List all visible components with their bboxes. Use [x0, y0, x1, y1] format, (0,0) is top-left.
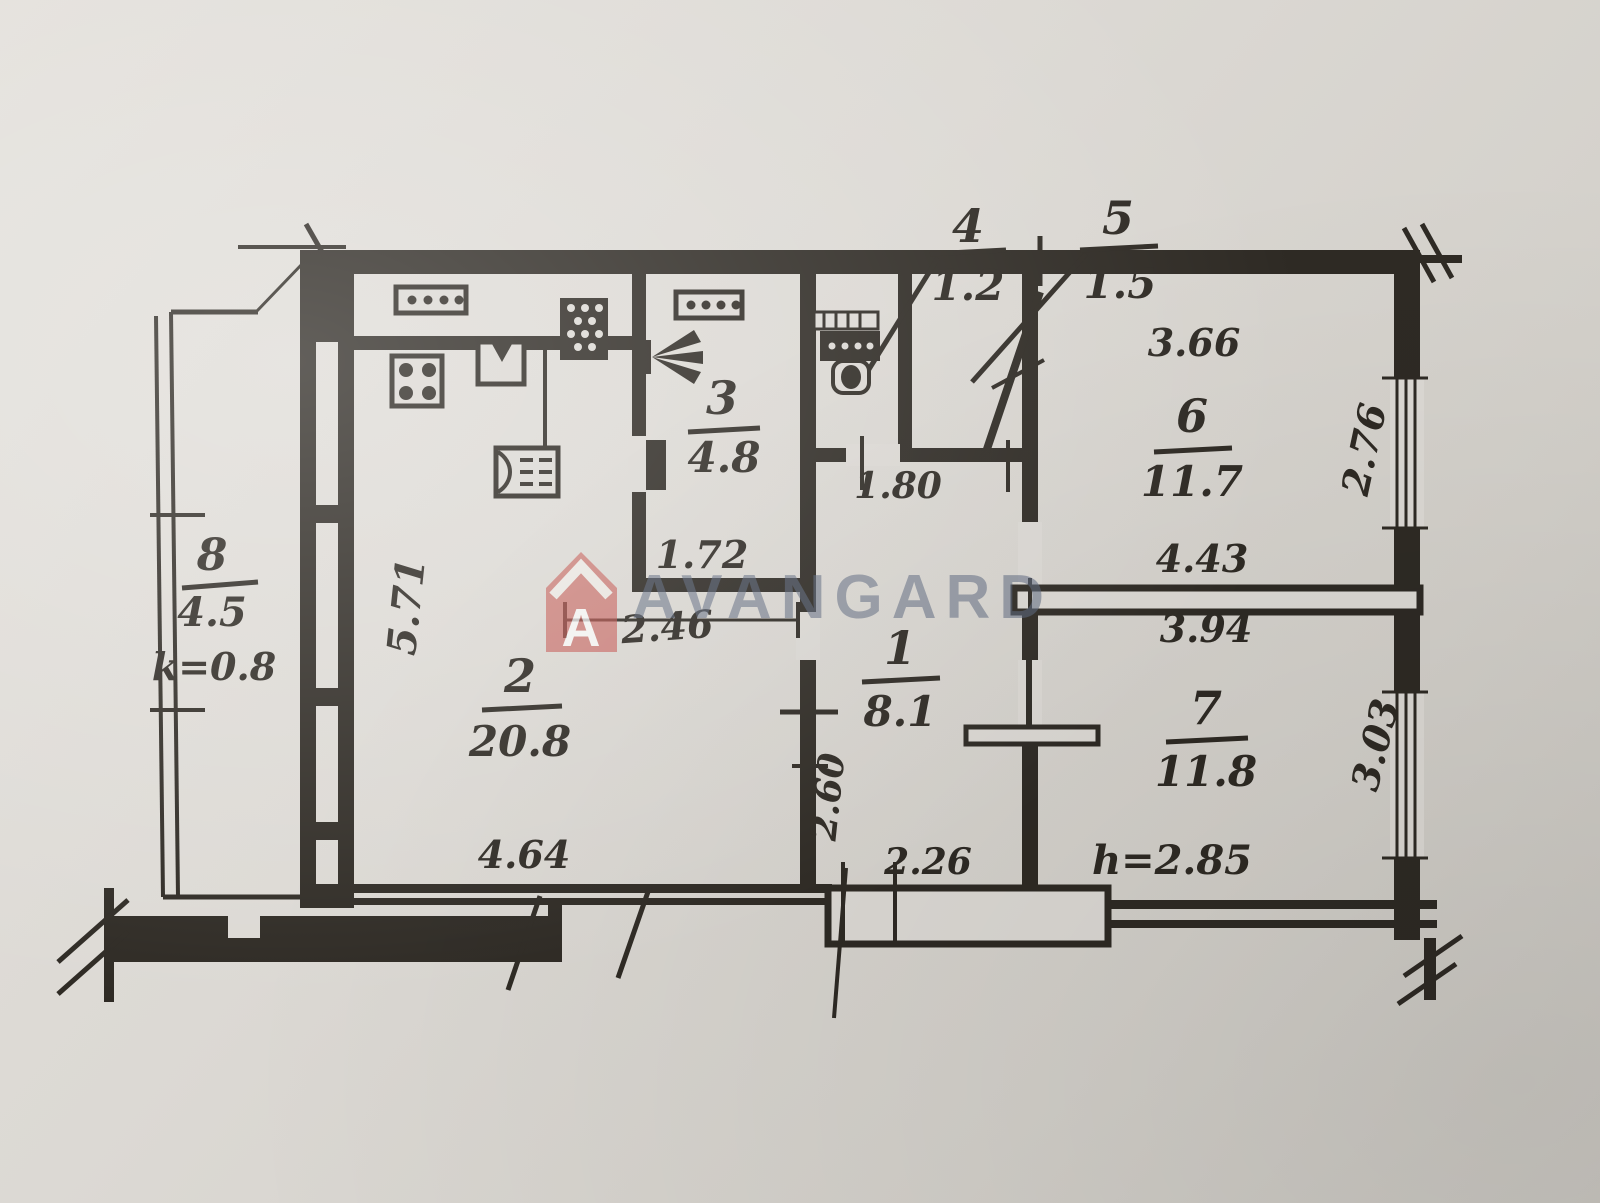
toilet-icon — [814, 312, 880, 393]
top-outer-wall — [302, 250, 1400, 274]
avangard-logo-icon: A — [546, 552, 617, 658]
room1-fraction-bar — [862, 678, 940, 682]
balcony-coefficient: k=0.8 — [152, 644, 276, 689]
left-outer-wall — [300, 250, 354, 908]
balcony-outline — [156, 262, 304, 897]
room8-fraction-bar — [182, 582, 258, 588]
room7-number: 7 — [1190, 681, 1222, 735]
room2-area: 20.8 — [468, 717, 571, 766]
floor-plan-svg: 4 1.2 5 1.5 3 4.8 6 11.7 1 8.1 7 11.8 2 … — [0, 0, 1600, 1203]
room5-fraction-bar — [1080, 246, 1158, 250]
room7-door — [966, 650, 1098, 815]
floor-plan-photo: 4 1.2 5 1.5 3 4.8 6 11.7 1 8.1 7 11.8 2 … — [0, 0, 1600, 1203]
room6-area: 11.7 — [1141, 457, 1243, 506]
room5-area: 1.5 — [1083, 259, 1156, 308]
dim-4-64: 4.64 — [478, 832, 571, 877]
wall-vent-icon-mid — [676, 292, 742, 318]
avangard-logo-letter: A — [562, 598, 601, 658]
vent-shaft-icon — [560, 298, 608, 360]
room7-area: 11.8 — [1155, 747, 1257, 796]
kitchen-sink-icon — [478, 342, 524, 384]
room3-area: 4.8 — [687, 433, 760, 482]
hall-bottom-wall — [828, 888, 1108, 944]
room8-number: 8 — [196, 530, 228, 581]
room3-fraction-bar — [688, 428, 760, 432]
dim-3-66: 3.66 — [1148, 320, 1241, 365]
avangard-watermark-text: AVANGARD — [632, 563, 1053, 632]
dim-3-94: 3.94 — [1160, 606, 1253, 651]
dim-2-76: 2.76 — [1332, 399, 1395, 500]
room8-area: 4.5 — [177, 589, 247, 636]
room6-fraction-bar — [1154, 448, 1232, 452]
room1-area: 8.1 — [862, 687, 936, 736]
room4-number: 4 — [952, 199, 984, 253]
wall-vent-icon-left — [396, 287, 466, 313]
dim-h-2-85: h=2.85 — [1092, 837, 1252, 884]
outlined-walls — [828, 588, 1420, 944]
washing-machine-icon — [496, 448, 558, 496]
room3-number: 3 — [706, 371, 738, 425]
stove-icon — [392, 356, 442, 406]
dim-2-26: 2.26 — [883, 841, 972, 883]
room3-left-wall — [632, 270, 646, 592]
dim-5-71: 5.71 — [378, 556, 435, 658]
dim-4-43: 4.43 — [1156, 536, 1249, 581]
washbasin-icon — [641, 330, 703, 384]
room5-number: 5 — [1102, 191, 1134, 245]
room2-number: 2 — [503, 649, 536, 703]
room2-fraction-bar — [482, 706, 562, 710]
room4-area: 1.2 — [931, 261, 1004, 310]
room7-fraction-bar — [1166, 738, 1248, 742]
dim-2-60: 2.60 — [802, 751, 853, 844]
dim-1-80: 1.80 — [854, 465, 942, 507]
room6-number: 6 — [1176, 389, 1208, 443]
room3-door-leaf — [646, 440, 666, 490]
